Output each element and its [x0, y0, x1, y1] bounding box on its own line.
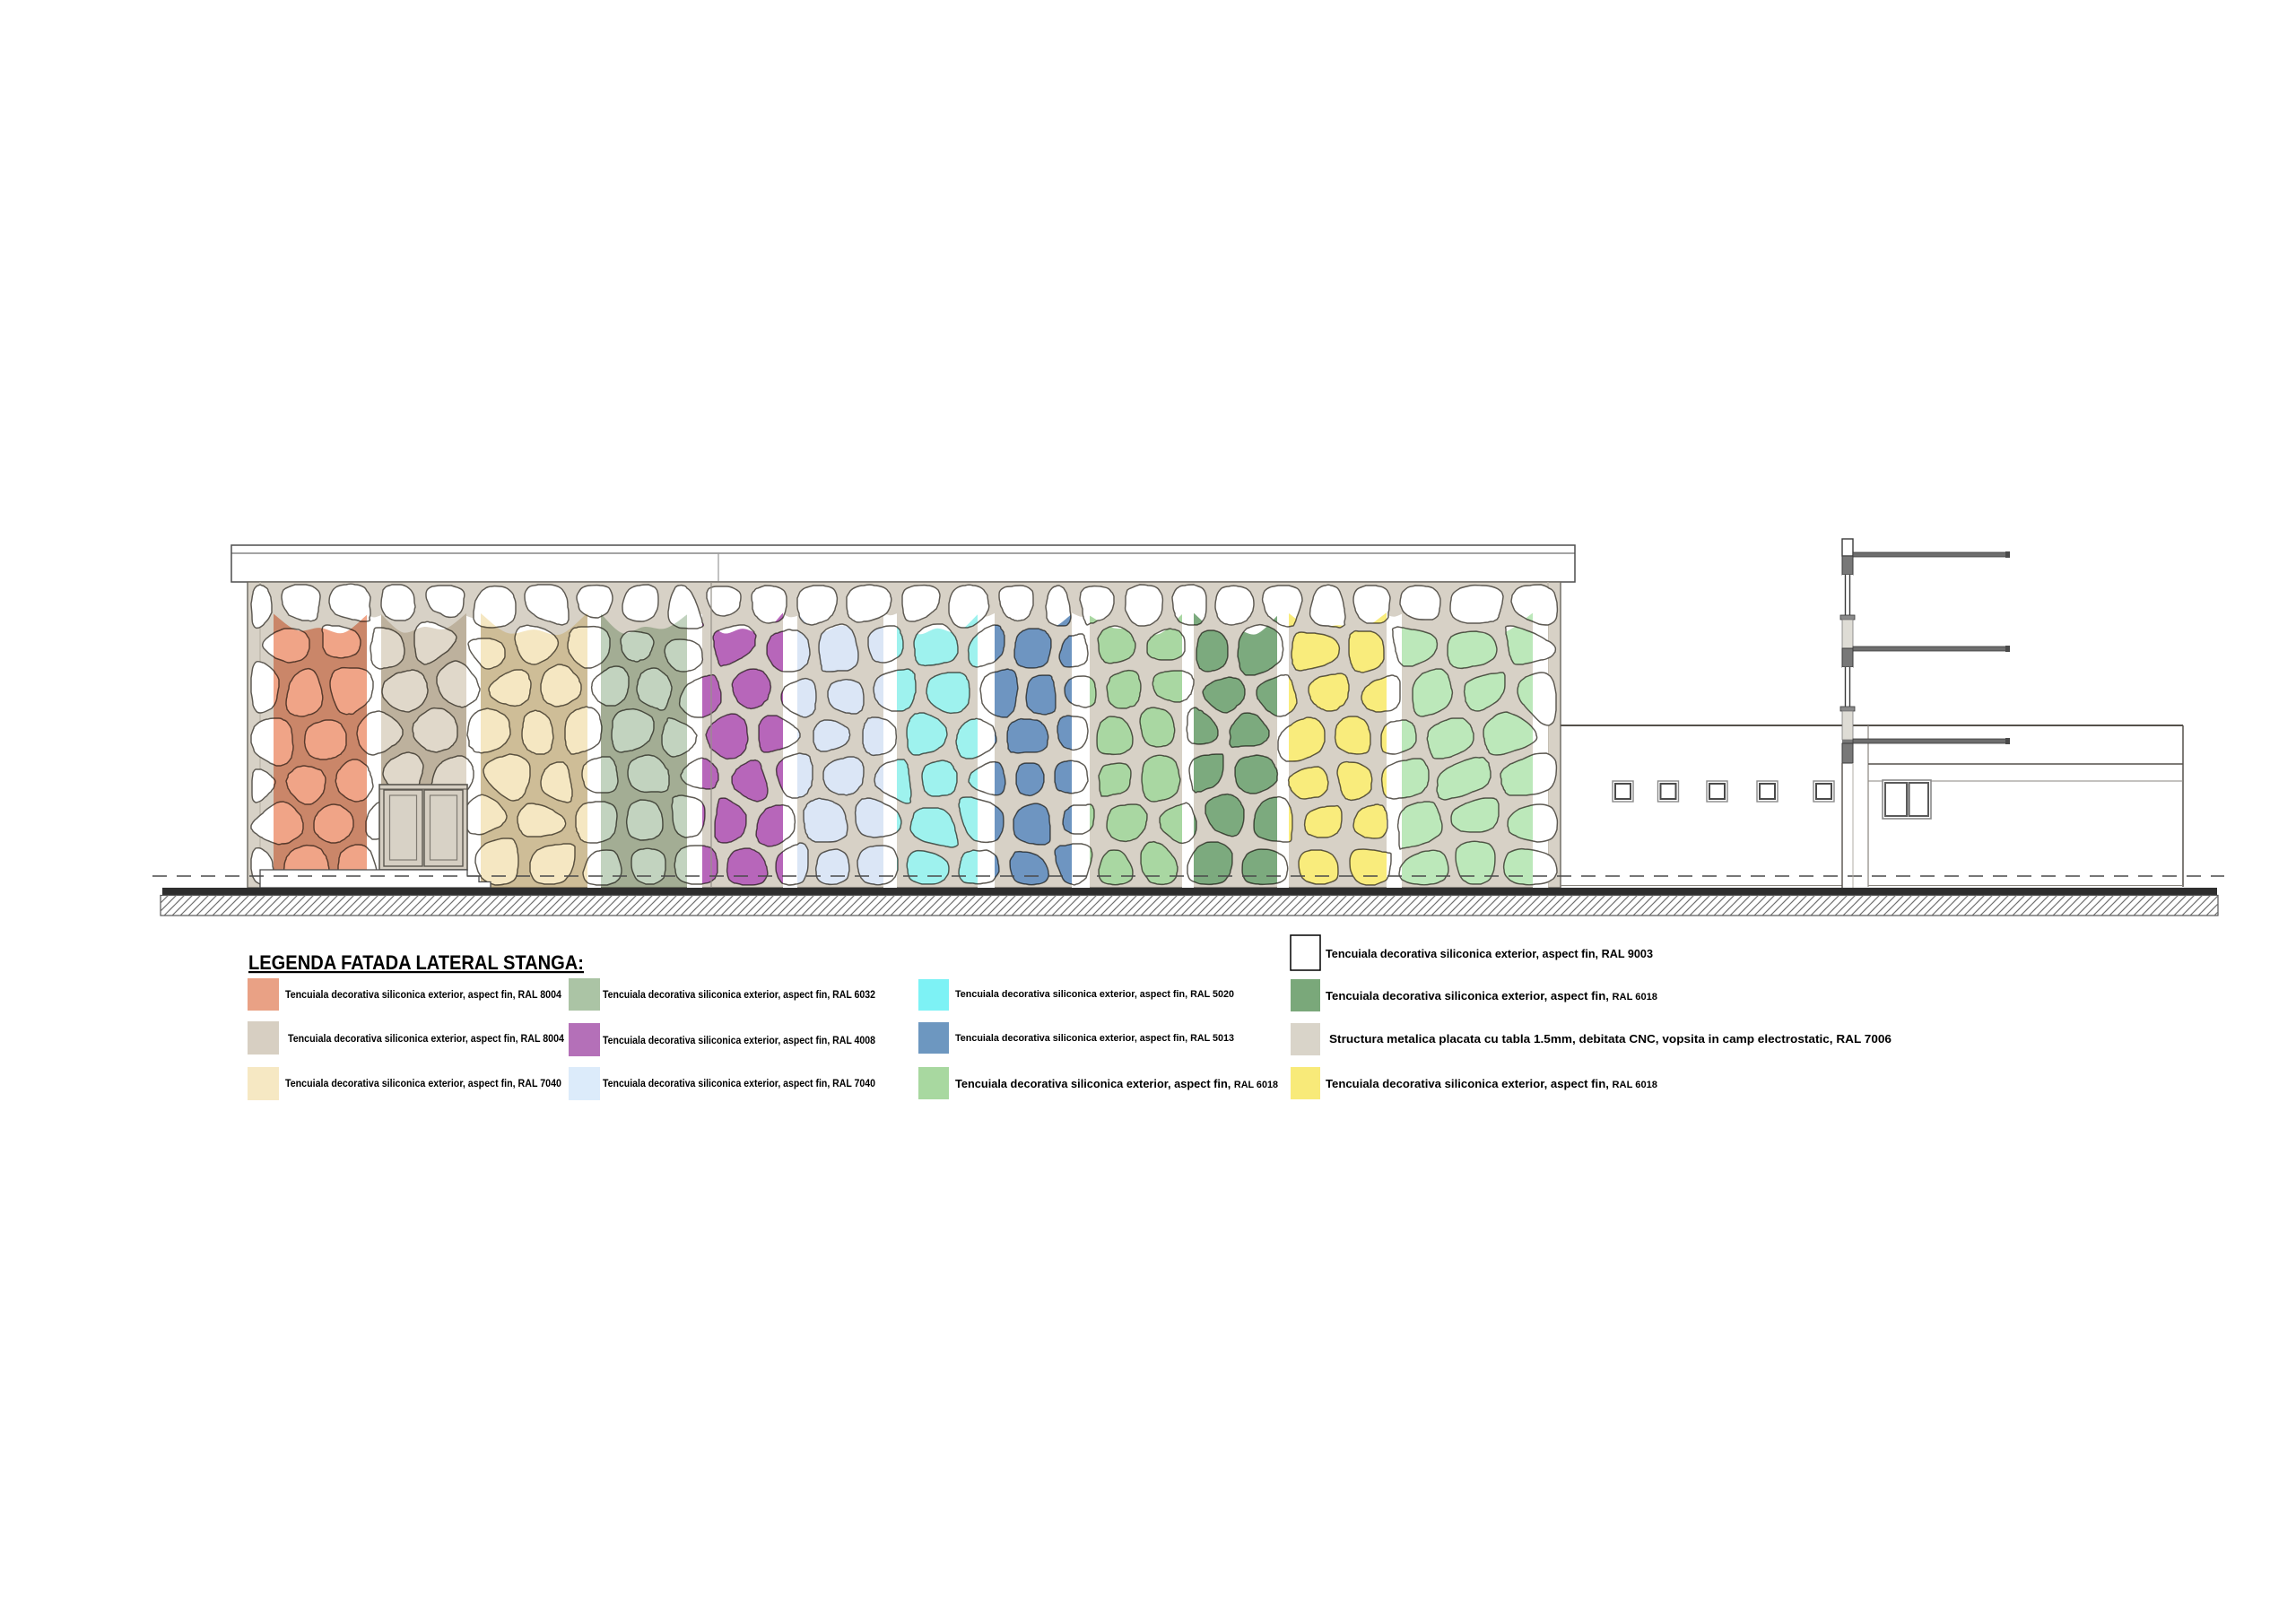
svg-text:Tencuiala decorativa siliconic: Tencuiala decorativa siliconica exterior…	[285, 1079, 561, 1089]
svg-text:Tencuiala decorativa siliconic: Tencuiala decorativa siliconica exterior…	[1326, 989, 1657, 1002]
svg-text:Tencuiala decorativa siliconic: Tencuiala decorativa siliconica exterior…	[288, 1034, 565, 1045]
svg-text:Tencuiala decorativa siliconic: Tencuiala decorativa siliconica exterior…	[603, 1036, 876, 1046]
svg-text:Tencuiala decorativa siliconic: Tencuiala decorativa siliconica exterior…	[603, 1079, 875, 1089]
svg-text:Tencuiala decorativa siliconic: Tencuiala decorativa siliconica exterior…	[1326, 947, 1653, 960]
svg-text:Tencuiala decorativa siliconic: Tencuiala decorativa siliconica exterior…	[1326, 1077, 1657, 1090]
svg-text:Tencuiala decorativa siliconic: Tencuiala decorativa siliconica exterior…	[955, 1033, 1234, 1044]
svg-text:LEGENDA FATADA LATERAL STANGA:: LEGENDA FATADA LATERAL STANGA:	[248, 951, 584, 974]
svg-text:Structura metalica placata cu: Structura metalica placata cu tabla 1.5m…	[1329, 1032, 1892, 1046]
svg-text:Tencuiala decorativa siliconic: Tencuiala decorativa siliconica exterior…	[955, 989, 1234, 1000]
svg-text:Tencuiala decorativa siliconic: Tencuiala decorativa siliconica exterior…	[955, 1077, 1278, 1090]
svg-text:Tencuiala decorativa siliconic: Tencuiala decorativa siliconica exterior…	[603, 990, 875, 1001]
svg-text:Tencuiala decorativa siliconic: Tencuiala decorativa siliconica exterior…	[285, 990, 562, 1001]
